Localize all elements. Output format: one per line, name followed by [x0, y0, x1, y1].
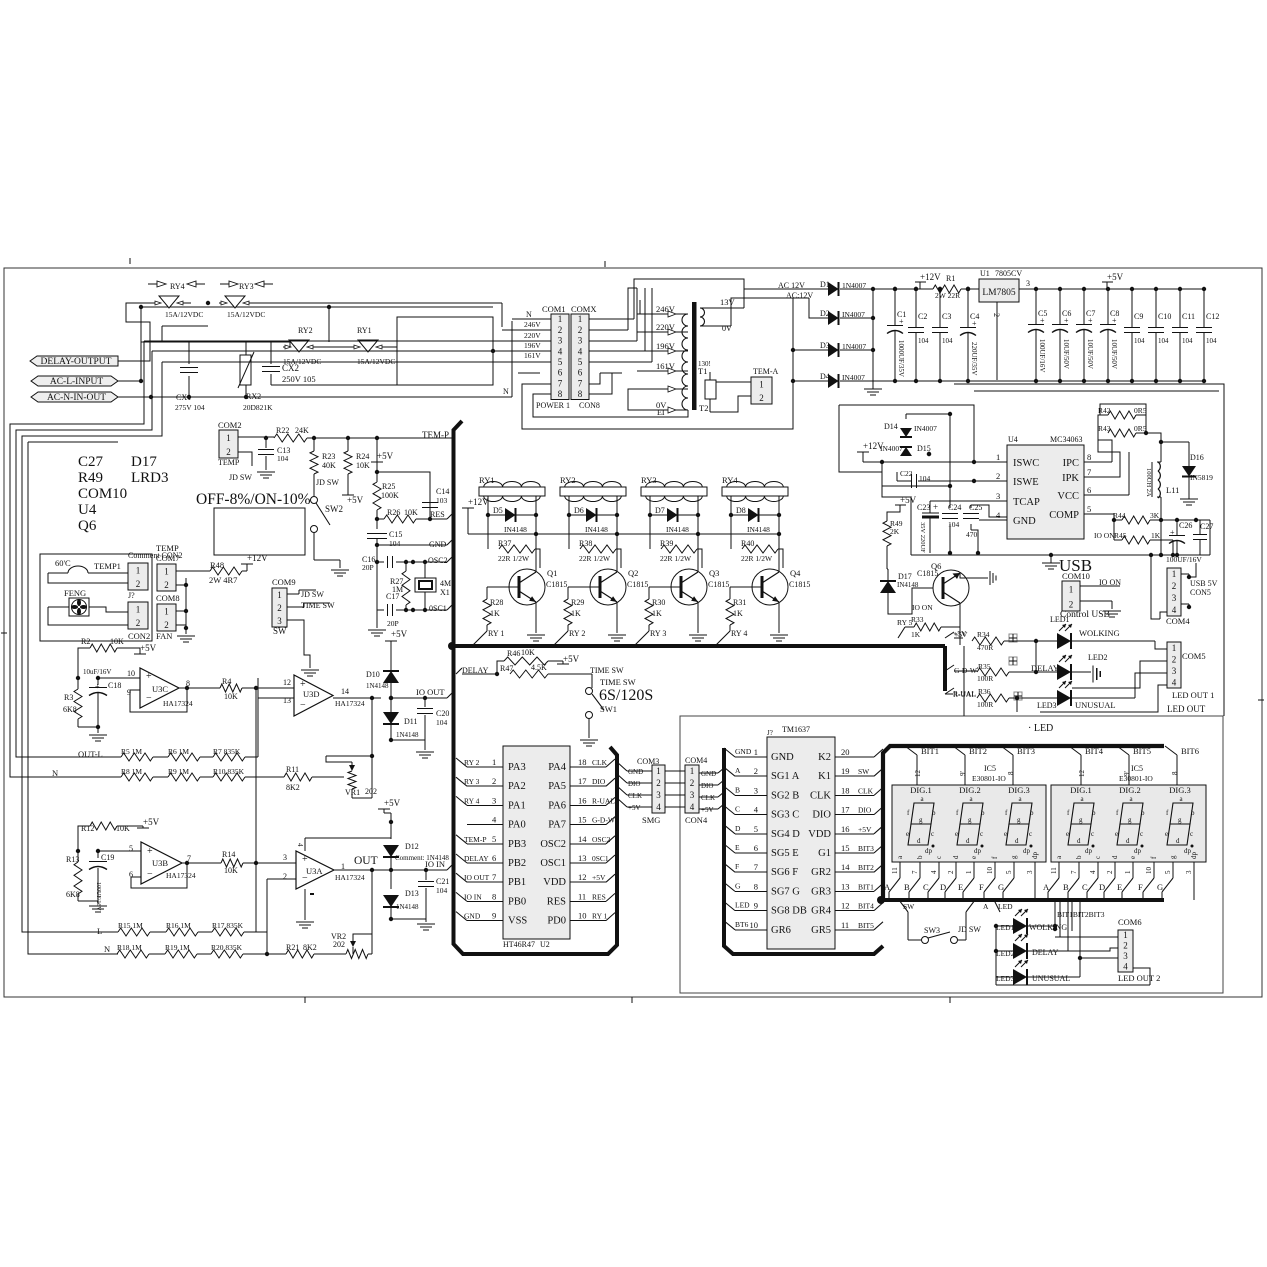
svg-text:c: c: [935, 856, 943, 859]
svg-text:R30: R30: [652, 598, 665, 607]
svg-text:1K: 1K: [571, 609, 581, 618]
svg-text:8: 8: [754, 881, 758, 891]
svg-text:GND: GND: [464, 912, 481, 921]
svg-text:4: 4: [1123, 962, 1128, 972]
svg-text:RES: RES: [592, 892, 606, 901]
svg-text:161V: 161V: [656, 361, 676, 371]
svg-text:R17 835K: R17 835K: [212, 921, 244, 930]
svg-text:USB 5V: USB 5V: [1190, 579, 1218, 588]
svg-text:R40: R40: [741, 539, 754, 548]
svg-text:PA4: PA4: [548, 762, 566, 773]
svg-text:COM4: COM4: [685, 756, 707, 765]
svg-text:1: 1: [690, 766, 695, 776]
svg-text:246V: 246V: [656, 304, 676, 314]
svg-text:275V 104: 275V 104: [175, 403, 205, 412]
svg-text:2W 22R: 2W 22R: [935, 291, 960, 300]
svg-text:HA17324: HA17324: [335, 699, 365, 708]
svg-text:BIT3: BIT3: [858, 844, 874, 853]
svg-text:VSS: VSS: [508, 916, 527, 927]
svg-text:15: 15: [841, 843, 850, 853]
svg-text:WOLKING: WOLKING: [1079, 628, 1120, 638]
svg-text:14: 14: [841, 862, 850, 872]
svg-text:GND: GND: [628, 768, 643, 776]
svg-text:D8: D8: [736, 506, 746, 515]
svg-text:b: b: [981, 809, 985, 817]
svg-text:10K: 10K: [116, 824, 130, 833]
svg-text:C1815: C1815: [917, 569, 938, 578]
svg-text:7: 7: [492, 872, 496, 882]
svg-text:2: 2: [136, 579, 141, 589]
svg-text:RY 1: RY 1: [592, 912, 608, 921]
svg-text:U3B: U3B: [152, 858, 168, 868]
svg-text:C1: C1: [897, 310, 906, 319]
svg-text:C12: C12: [1206, 312, 1219, 321]
svg-text:BIT1BIT2BIT3: BIT1BIT2BIT3: [1057, 910, 1105, 919]
svg-text:D12: D12: [405, 842, 419, 851]
svg-text:2K: 2K: [890, 527, 900, 536]
svg-text:+12V: +12V: [247, 553, 268, 563]
svg-text:5: 5: [578, 357, 583, 367]
svg-text:G1: G1: [818, 848, 831, 859]
svg-text:14: 14: [341, 687, 349, 696]
svg-text:196V: 196V: [524, 341, 541, 350]
svg-text:5: 5: [754, 824, 758, 834]
svg-text:BIT5: BIT5: [858, 921, 874, 930]
svg-text:R2: R2: [81, 637, 90, 646]
svg-text:UNUSUAL: UNUSUAL: [1032, 974, 1070, 983]
svg-text:SW: SW: [273, 626, 287, 636]
svg-text:GND: GND: [1013, 516, 1036, 527]
svg-text:C: C: [923, 882, 929, 892]
svg-text:TCAP: TCAP: [1013, 497, 1040, 508]
svg-text:5: 5: [558, 357, 563, 367]
svg-text:CX2: CX2: [282, 363, 299, 373]
svg-text:RY 4: RY 4: [464, 796, 480, 805]
svg-text:D: D: [735, 824, 741, 833]
svg-text:BIT1: BIT1: [921, 746, 939, 756]
svg-text:DELAY: DELAY: [464, 854, 489, 863]
svg-text:d: d: [966, 837, 970, 845]
svg-text:e: e: [1129, 856, 1137, 859]
svg-text:C11: C11: [1182, 312, 1195, 321]
svg-text:20D821K: 20D821K: [243, 403, 273, 412]
svg-text:103: 103: [436, 496, 448, 505]
svg-text:13: 13: [578, 853, 587, 863]
svg-text:8: 8: [1007, 771, 1015, 775]
svg-text:b: b: [1030, 809, 1034, 817]
svg-text:+5V: +5V: [1107, 272, 1124, 282]
svg-text:+12V: +12V: [863, 441, 884, 451]
svg-text:G-D-W: G-D-W: [592, 816, 616, 825]
svg-text:3: 3: [1172, 593, 1177, 603]
svg-text:A: A: [1043, 882, 1050, 892]
svg-text:LM7805: LM7805: [982, 288, 1016, 298]
svg-text:3: 3: [1172, 666, 1177, 676]
svg-text:· LED: · LED: [1028, 723, 1053, 734]
svg-text:22R 1/2W: 22R 1/2W: [579, 554, 611, 563]
svg-text:C3: C3: [942, 312, 951, 321]
svg-text:40K: 40K: [322, 461, 336, 470]
svg-text:17: 17: [578, 776, 587, 786]
svg-text:TIME SW: TIME SW: [590, 666, 624, 675]
svg-text:D15: D15: [917, 444, 931, 453]
svg-text:BIT3: BIT3: [1017, 746, 1035, 756]
svg-text:K2: K2: [818, 752, 831, 763]
svg-text:G: G: [735, 881, 741, 890]
svg-text:DIG.3: DIG.3: [1169, 785, 1190, 795]
svg-text:COM2: COM2: [218, 420, 242, 430]
svg-text:RY 2: RY 2: [569, 629, 585, 638]
svg-text:104: 104: [1134, 337, 1145, 345]
svg-text:196V: 196V: [656, 341, 676, 351]
svg-text:CLK: CLK: [858, 786, 874, 795]
svg-text:C6: C6: [1062, 309, 1071, 318]
svg-text:PA2: PA2: [508, 781, 526, 792]
svg-text:d: d: [1077, 837, 1081, 845]
svg-text:d: d: [952, 855, 960, 859]
svg-text:BIT6: BIT6: [1181, 746, 1199, 756]
svg-text:BIT1: BIT1: [858, 882, 874, 891]
svg-text:U3D: U3D: [303, 689, 320, 699]
svg-text:RY4: RY4: [170, 282, 185, 291]
svg-text:+5V: +5V: [384, 798, 401, 808]
svg-text:TIME SW: TIME SW: [301, 601, 335, 610]
svg-text:R26: R26: [387, 508, 400, 517]
svg-text:R31: R31: [733, 598, 746, 607]
svg-text:COM10: COM10: [1062, 571, 1090, 581]
svg-text:11: 11: [841, 920, 849, 930]
svg-text:N: N: [104, 944, 110, 954]
svg-text:DIG.1: DIG.1: [910, 785, 931, 795]
svg-text:IPC: IPC: [1063, 458, 1079, 469]
svg-text:D17: D17: [898, 572, 912, 581]
svg-text:A: A: [884, 882, 891, 892]
svg-text:CX1: CX1: [176, 393, 191, 402]
svg-text:COM10: COM10: [78, 486, 127, 502]
svg-text:RY 3: RY 3: [650, 629, 666, 638]
svg-text:N: N: [503, 387, 509, 396]
svg-text:OSC1: OSC1: [540, 858, 566, 869]
svg-text:F: F: [735, 862, 739, 871]
svg-text:LED2: LED2: [996, 949, 1015, 958]
svg-text:3K: 3K: [1150, 511, 1160, 520]
svg-text:24K: 24K: [295, 426, 309, 435]
svg-text:C9: C9: [1134, 312, 1143, 321]
svg-text:E30801-IO: E30801-IO: [972, 774, 1006, 783]
svg-text:RY2: RY2: [298, 326, 313, 335]
svg-text:N: N: [526, 310, 532, 319]
svg-text:LED1: LED1: [1050, 615, 1070, 624]
svg-text:10K: 10K: [521, 648, 535, 657]
svg-text:D17: D17: [131, 454, 157, 470]
svg-text:3: 3: [656, 790, 661, 800]
svg-text:LED2: LED2: [1088, 653, 1108, 662]
svg-text:R20 835K: R20 835K: [211, 943, 243, 952]
svg-text:PA7: PA7: [548, 820, 566, 831]
svg-text:3: 3: [1026, 279, 1030, 288]
svg-text:b: b: [1141, 809, 1145, 817]
svg-text:470: 470: [966, 530, 978, 539]
svg-text:+: +: [302, 854, 308, 865]
svg-text:CON4: CON4: [685, 815, 708, 825]
svg-text:0SC1: 0SC1: [429, 604, 447, 613]
svg-text:R11: R11: [286, 765, 299, 774]
svg-text:LED OUT 1: LED OUT 1: [1172, 690, 1214, 700]
svg-text:c: c: [1190, 830, 1193, 838]
svg-text:dp: dp: [1134, 847, 1142, 855]
svg-text:1: 1: [759, 379, 764, 389]
svg-text:TEM-P: TEM-P: [464, 835, 487, 844]
svg-text:C26: C26: [1179, 521, 1192, 530]
svg-text:GR6: GR6: [771, 925, 791, 936]
svg-text:PD0: PD0: [547, 916, 566, 927]
svg-text:12: 12: [914, 770, 922, 778]
svg-text:1K: 1K: [911, 630, 921, 639]
svg-text:OFF-8%/ON-10%: OFF-8%/ON-10%: [196, 491, 311, 508]
svg-text:CON8: CON8: [579, 401, 600, 410]
svg-text:20P: 20P: [362, 563, 374, 572]
svg-text:K1: K1: [818, 771, 831, 782]
svg-text:+5V: +5V: [858, 825, 872, 834]
svg-text:TEMP: TEMP: [218, 458, 240, 467]
svg-text:202: 202: [365, 787, 377, 796]
svg-text:−: −: [300, 700, 306, 711]
svg-text:IO OUT: IO OUT: [464, 873, 490, 882]
svg-text:8: 8: [492, 891, 496, 901]
svg-text:8: 8: [1087, 452, 1091, 462]
svg-text:C15: C15: [389, 530, 402, 539]
svg-text:13: 13: [283, 696, 291, 705]
svg-text:IO ON: IO ON: [1094, 531, 1115, 540]
svg-text:R34: R34: [977, 630, 990, 639]
svg-text:dp: dp: [1190, 852, 1198, 860]
svg-text:+5V: +5V: [143, 817, 160, 827]
svg-text:C1815: C1815: [627, 580, 648, 589]
svg-text:1000UF/35V: 1000UF/35V: [897, 340, 905, 377]
svg-text:220UF/35V: 220UF/35V: [970, 342, 978, 375]
svg-text:COM4: COM4: [1166, 616, 1190, 626]
svg-text:10: 10: [127, 669, 135, 678]
svg-text:TEM-A: TEM-A: [753, 367, 779, 376]
svg-text:UNUSUAL: UNUSUAL: [1075, 700, 1116, 710]
svg-text:WOLKING: WOLKING: [1029, 923, 1067, 932]
svg-text:CLK: CLK: [628, 792, 642, 800]
svg-text:U2: U2: [540, 940, 550, 949]
svg-text:202: 202: [333, 940, 345, 949]
svg-text:U4: U4: [1008, 435, 1018, 444]
svg-text:35V 220UF: 35V 220UF: [919, 522, 926, 553]
svg-text:1: 1: [1172, 569, 1177, 579]
svg-text:SW2: SW2: [325, 504, 343, 514]
svg-text:LED3: LED3: [996, 974, 1015, 983]
svg-text:R33: R33: [911, 615, 924, 624]
svg-text:E: E: [1117, 882, 1122, 892]
svg-text:PA1: PA1: [508, 800, 526, 811]
svg-text:+5V: +5V: [628, 804, 641, 812]
svg-text:9': 9': [1123, 771, 1131, 776]
svg-text:2: 2: [226, 447, 231, 457]
svg-text:12: 12: [283, 678, 291, 687]
svg-text:HT46R47: HT46R47: [503, 940, 535, 949]
svg-text:D10: D10: [366, 670, 380, 679]
svg-text:F: F: [979, 882, 984, 892]
svg-text:JD SW: JD SW: [316, 478, 339, 487]
svg-text:IO IN: IO IN: [425, 859, 445, 869]
svg-text:A: A: [983, 902, 989, 911]
svg-text:U3C: U3C: [152, 684, 168, 694]
svg-text:RY4: RY4: [722, 475, 738, 485]
svg-text:COM9: COM9: [272, 577, 296, 587]
svg-text:CON2: CON2: [128, 631, 150, 641]
svg-text:4: 4: [578, 346, 583, 356]
svg-text:AC-L-INPUT: AC-L-INPUT: [50, 377, 103, 387]
svg-text:F: F: [1138, 882, 1143, 892]
svg-text:3: 3: [1026, 870, 1034, 874]
svg-text:R14: R14: [222, 850, 235, 859]
svg-text:HA17324: HA17324: [166, 871, 196, 880]
svg-text:LED OUT 2: LED OUT 2: [1118, 973, 1160, 983]
svg-text:104: 104: [919, 474, 931, 483]
svg-text:1: 1: [136, 565, 141, 575]
svg-text:4: 4: [690, 802, 695, 812]
svg-text:2: 2: [578, 325, 583, 335]
svg-text:LED OUT: LED OUT: [1167, 704, 1206, 714]
svg-text:DIG.2: DIG.2: [959, 785, 980, 795]
svg-text:R3: R3: [64, 693, 73, 702]
svg-text:2: 2: [996, 471, 1000, 481]
svg-text:2: 2: [1172, 581, 1177, 591]
svg-text:7805CV: 7805CV: [995, 269, 1022, 278]
svg-text:BT6: BT6: [735, 920, 749, 929]
svg-text:C17: C17: [386, 592, 399, 601]
svg-text:U4: U4: [78, 502, 97, 518]
svg-text:D: D: [1099, 882, 1105, 892]
svg-text:2: 2: [1069, 600, 1074, 610]
svg-text:R-UAL: R-UAL: [953, 690, 976, 699]
svg-text:dp: dp: [974, 847, 982, 855]
svg-text:e: e: [955, 830, 958, 838]
svg-text:100K: 100K: [381, 491, 399, 500]
svg-text:2: 2: [492, 776, 496, 786]
svg-text:100UH 2A: 100UH 2A: [1145, 468, 1152, 497]
svg-text:VCC: VCC: [1057, 491, 1079, 502]
svg-text:IPK: IPK: [1062, 473, 1079, 484]
svg-text:104: 104: [389, 539, 401, 548]
svg-text:2: 2: [558, 325, 563, 335]
svg-text:RY 1: RY 1: [488, 629, 504, 638]
svg-text:10K: 10K: [404, 508, 418, 517]
svg-text:1N4148: 1N4148: [396, 903, 419, 911]
svg-text:dp: dp: [925, 847, 933, 855]
svg-text:GND: GND: [771, 752, 794, 763]
svg-text:3: 3: [492, 795, 496, 805]
svg-text:1: 1: [226, 433, 231, 443]
svg-text:C: C: [1082, 882, 1088, 892]
svg-text:1: 1: [578, 314, 583, 324]
svg-text:+5V: +5V: [701, 806, 714, 814]
svg-text:e: e: [906, 830, 909, 838]
svg-text:dp: dp: [1031, 852, 1039, 860]
svg-text:dp: dp: [1023, 847, 1031, 855]
svg-text:D14: D14: [884, 422, 898, 431]
svg-text:+12V: +12V: [920, 272, 941, 282]
svg-text:6: 6: [578, 368, 583, 378]
svg-text:C20: C20: [436, 709, 449, 718]
svg-text:T2: T2: [699, 403, 708, 413]
svg-text:R35: R35: [978, 662, 991, 671]
svg-text:PB1: PB1: [508, 877, 526, 888]
svg-text:60'C: 60'C: [55, 558, 71, 568]
svg-text:R38: R38: [579, 539, 592, 548]
svg-text:Q1: Q1: [547, 568, 557, 578]
svg-text:4: 4: [930, 870, 938, 874]
svg-text:R49: R49: [78, 470, 103, 486]
svg-text:OUT: OUT: [354, 855, 378, 867]
svg-text:R37: R37: [498, 539, 511, 548]
svg-text:IC5: IC5: [1131, 764, 1143, 773]
svg-text:15A/12VDC: 15A/12VDC: [227, 310, 265, 319]
svg-text:e: e: [970, 856, 978, 859]
svg-text:c: c: [1091, 830, 1094, 838]
svg-text:R23: R23: [322, 452, 335, 461]
svg-text:2: 2: [164, 620, 169, 630]
svg-text:7: 7: [911, 870, 919, 874]
svg-text:dp: dp: [1085, 847, 1093, 855]
svg-text:5: 5: [129, 844, 133, 853]
svg-text:VDD: VDD: [808, 829, 831, 840]
svg-text:OSC2: OSC2: [428, 556, 448, 565]
svg-text:g: g: [1010, 855, 1018, 859]
svg-text:COM6: COM6: [1118, 917, 1142, 927]
svg-text:J?: J?: [128, 591, 135, 600]
svg-text:10K: 10K: [110, 637, 124, 646]
svg-text:19: 19: [841, 766, 850, 776]
svg-text:IO ON: IO ON: [1099, 578, 1121, 587]
svg-text:R29: R29: [571, 598, 584, 607]
svg-text:PA3: PA3: [508, 762, 526, 773]
svg-text:GR3: GR3: [811, 886, 831, 897]
svg-text:4: 4: [1172, 677, 1177, 687]
svg-text:1K: 1K: [490, 609, 500, 618]
svg-text:1: 1: [1124, 870, 1132, 874]
svg-text:1: 1: [1069, 585, 1074, 595]
svg-text:161V: 161V: [524, 351, 541, 360]
svg-text:DIO: DIO: [628, 780, 640, 788]
svg-text:IO IN: IO IN: [464, 892, 482, 901]
svg-text:+5V: +5V: [391, 629, 408, 639]
svg-text:SG1 A: SG1 A: [771, 771, 800, 782]
svg-text:PB0: PB0: [508, 896, 526, 907]
svg-text:E: E: [958, 882, 963, 892]
svg-text:G: G: [1157, 882, 1163, 892]
svg-text:6: 6: [492, 853, 496, 863]
svg-text:2: 2: [947, 870, 955, 874]
svg-text:1: 1: [754, 747, 758, 757]
svg-text:11: 11: [1050, 867, 1058, 874]
svg-text:ISWE: ISWE: [1013, 477, 1039, 488]
svg-text:D7: D7: [655, 506, 665, 515]
svg-text:d: d: [917, 837, 921, 845]
svg-text:Q2: Q2: [628, 568, 638, 578]
svg-text:8: 8: [1171, 771, 1179, 775]
svg-text:1N4148: 1N4148: [366, 682, 389, 690]
svg-text:C27: C27: [78, 454, 104, 470]
svg-text:4M: 4M: [440, 579, 451, 588]
svg-text:10K: 10K: [224, 866, 238, 875]
svg-text:3: 3: [754, 785, 758, 795]
svg-text:1: 1: [965, 870, 973, 874]
svg-text:B: B: [1063, 882, 1069, 892]
